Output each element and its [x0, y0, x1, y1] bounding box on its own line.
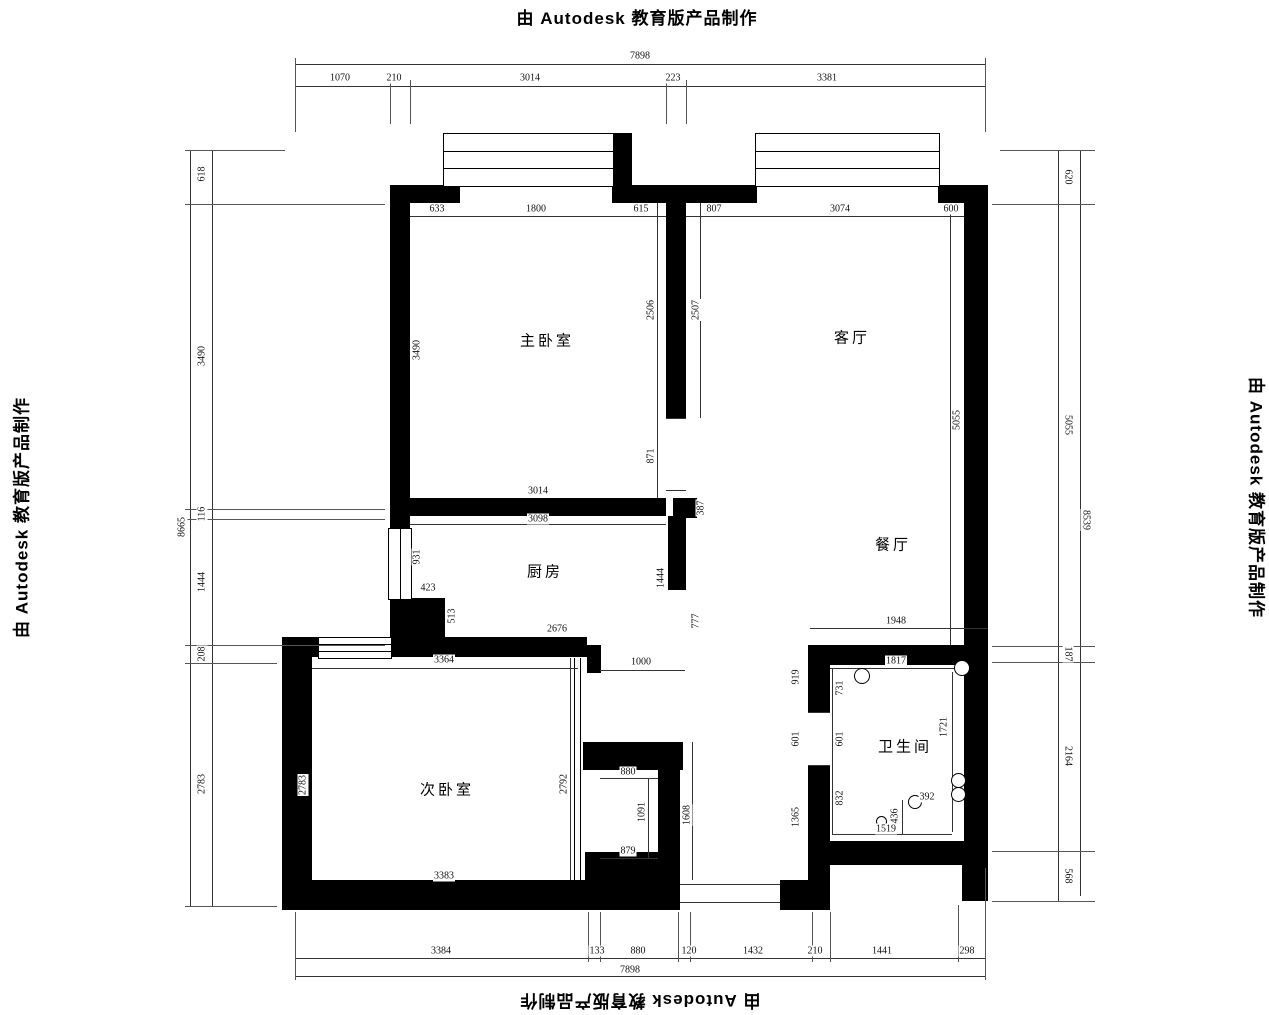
- dim-line-1091: [648, 778, 649, 858]
- wall-top-left: [390, 185, 460, 203]
- floor-plan-canvas: 由 Autodesk 教育版产品制作 由 Autodesk 教育版产品制作 由 …: [0, 0, 1269, 1015]
- dim-lr-807: 807: [706, 204, 723, 215]
- extension-line: [830, 912, 831, 962]
- extension-line: [992, 851, 1095, 852]
- dim-right-2164: 2164: [1063, 745, 1074, 767]
- wall-right-exterior: [964, 203, 988, 843]
- fixture-circle: [854, 668, 870, 684]
- room-label-master-bedroom: 主卧室: [520, 334, 574, 349]
- dim-left-2783: 2783: [197, 773, 208, 795]
- extension-line: [992, 901, 1095, 902]
- wall-mid-partition: [666, 203, 686, 418]
- extension-line: [185, 645, 385, 646]
- dim-line-bottom-total: [295, 976, 985, 977]
- dim-line-880: [600, 778, 658, 779]
- dim-1091: 1091: [637, 801, 648, 823]
- dim-line-left-segs: [212, 150, 213, 906]
- dim-line-lr-top: [686, 216, 964, 217]
- dim-line-1000: [600, 670, 685, 671]
- dim-bottom-210: 210: [807, 946, 824, 957]
- room-label-kitchen: 厨房: [527, 565, 563, 580]
- dim-931: 931: [412, 549, 423, 566]
- dim-mb-615: 615: [633, 204, 650, 215]
- dim-2507: 2507: [691, 299, 702, 321]
- extension-line: [185, 519, 385, 520]
- dim-left-116: 116: [197, 506, 208, 523]
- dim-mb-1800: 1800: [525, 204, 547, 215]
- wall-hall-stub: [587, 645, 601, 673]
- extension-line: [686, 80, 687, 124]
- dim-line-bottom-segs: [295, 958, 985, 959]
- bath-door-jamb: [808, 712, 830, 713]
- dim-right-187: 187: [1063, 646, 1074, 663]
- dim-1444: 1444: [656, 567, 667, 589]
- dim-left-208: 208: [197, 646, 208, 663]
- extension-line: [1000, 150, 1095, 151]
- dim-3098: 3098: [527, 514, 549, 525]
- dim-bottom-298: 298: [959, 946, 976, 957]
- banner-left: 由 Autodesk 教育版产品制作: [8, 348, 33, 688]
- dim-right-5055: 5055: [1063, 414, 1074, 436]
- extension-line: [992, 646, 1095, 647]
- dim-top-1070: 1070: [329, 73, 351, 84]
- dim-871: 871: [646, 448, 657, 465]
- dim-line-top-total: [295, 64, 985, 65]
- dim-line-1817: [830, 668, 958, 669]
- dim-bottom-120: 120: [681, 946, 698, 957]
- dim-line-1721: [952, 672, 953, 832]
- dim-2506: 2506: [646, 299, 657, 321]
- dim-3364: 3364: [433, 655, 455, 666]
- dim-1817: 1817: [885, 656, 907, 667]
- dim-top-210: 210: [386, 73, 403, 84]
- extension-line: [185, 509, 385, 510]
- dim-436: 436: [890, 808, 901, 825]
- dim-top-total: 7898: [629, 51, 651, 62]
- dim-bottom-1441: 1441: [871, 946, 893, 957]
- dim-601-in: 601: [835, 731, 846, 748]
- dim-lr-3074: 3074: [829, 204, 851, 215]
- wall-top-mid: [612, 185, 757, 203]
- dim-top-223: 223: [665, 73, 682, 84]
- dim-1000: 1000: [630, 657, 652, 668]
- dim-392: 392: [919, 792, 936, 803]
- extension-line: [295, 58, 296, 132]
- dim-line-1948: [810, 628, 988, 629]
- dim-1608: 1608: [682, 804, 693, 826]
- dim-777: 777: [691, 613, 702, 630]
- dim-right-568: 568: [1063, 868, 1074, 885]
- banner-top: 由 Autodesk 教育版产品制作: [467, 4, 807, 29]
- fixture-circle: [951, 773, 966, 788]
- dim-879: 879: [620, 846, 637, 857]
- dim-832: 832: [835, 790, 846, 807]
- dim-left-618: 618: [197, 166, 208, 183]
- dim-lr-600: 600: [943, 204, 960, 215]
- dim-line-left-total: [190, 150, 191, 906]
- wall-sb-top-b: [390, 637, 587, 657]
- window-living-room: [755, 133, 940, 187]
- wall-sb-bottom: [282, 880, 680, 910]
- dim-2676: 2676: [546, 624, 568, 635]
- extension-line: [185, 906, 277, 907]
- fixture-circle: [954, 660, 970, 676]
- dim-3014: 3014: [527, 486, 549, 497]
- extension-line: [992, 204, 1095, 205]
- dim-1948: 1948: [885, 616, 907, 627]
- dim-line-3364: [312, 668, 578, 669]
- dim-mb-3490: 3490: [412, 339, 423, 361]
- extension-line: [985, 868, 986, 980]
- dim-2792: 2792: [559, 773, 570, 795]
- partition-sb-right: [574, 658, 581, 880]
- dim-top-3381: 3381: [816, 73, 838, 84]
- dim-513: 513: [447, 608, 458, 625]
- entry-threshold-line: [680, 884, 780, 885]
- wall-left-upper: [390, 203, 410, 528]
- dim-line-bath-inner: [832, 668, 833, 834]
- wall-kitchen-dining: [668, 516, 686, 590]
- dim-387: 387: [696, 500, 707, 517]
- dim-bottom-3384: 3384: [430, 946, 452, 957]
- dim-1721: 1721: [939, 716, 950, 738]
- extension-line: [666, 80, 667, 124]
- room-label-second-bedroom: 次卧室: [420, 783, 474, 798]
- extension-line: [185, 663, 277, 664]
- dim-423: 423: [420, 583, 437, 594]
- dim-left-1444: 1444: [197, 571, 208, 593]
- extension-line: [295, 912, 296, 980]
- dim-line-436: [902, 800, 903, 834]
- dim-5055-interior: 5055: [952, 409, 963, 431]
- banner-bottom: 由 Autodesk 教育版产品制作: [470, 990, 810, 1015]
- dim-3383: 3383: [433, 871, 455, 882]
- dim-line-879: [600, 858, 658, 859]
- dim-880-closet: 880: [620, 767, 637, 778]
- dim-line-mb-top: [410, 216, 666, 217]
- extension-line: [985, 58, 986, 132]
- dim-mb-633: 633: [429, 204, 446, 215]
- dim-right-620: 620: [1063, 169, 1074, 186]
- extension-line: [678, 912, 679, 962]
- room-label-dining-room: 餐厅: [875, 538, 911, 553]
- dim-bottom-880: 880: [630, 946, 647, 957]
- wall-top-right: [938, 185, 988, 203]
- dim-left-total: 8665: [177, 516, 188, 538]
- extension-line: [992, 662, 1095, 663]
- wall-bath-left-bottom: [808, 765, 830, 910]
- extension-line: [410, 80, 411, 124]
- dim-line-871: [657, 418, 658, 498]
- dim-bottom-1432: 1432: [742, 946, 764, 957]
- window-second-bedroom: [318, 637, 392, 659]
- dim-line-2792: [570, 658, 571, 880]
- dim-line-right-segs: [1058, 150, 1059, 901]
- dim-bottom-total: 7898: [619, 965, 641, 976]
- dim-left-3490: 3490: [197, 345, 208, 367]
- dim-1365: 1365: [791, 806, 802, 828]
- dim-top-3014: 3014: [519, 73, 541, 84]
- entry-threshold-line: [680, 902, 780, 903]
- bath-door-jamb: [808, 765, 830, 766]
- window-kitchen: [388, 528, 412, 600]
- banner-right: 由 Autodesk 教育版产品制作: [1246, 328, 1269, 668]
- dim-line-2506: [657, 203, 658, 418]
- mb-door-jamb: [666, 418, 686, 419]
- dim-bottom-133: 133: [589, 946, 606, 957]
- window-master-bedroom: [443, 133, 614, 187]
- dim-919: 919: [791, 669, 802, 686]
- wall-stub-387: [673, 498, 697, 518]
- extension-line: [390, 80, 391, 124]
- dim-2783-interior: 2783: [298, 774, 309, 796]
- mb-door-jamb: [666, 490, 686, 491]
- extension-line: [185, 204, 385, 205]
- dim-601-out: 601: [791, 731, 802, 748]
- dim-1519: 1519: [875, 824, 897, 835]
- room-label-living-room: 客厅: [834, 331, 870, 346]
- dim-right-total: 8539: [1081, 509, 1092, 531]
- dim-line-top-segs: [295, 86, 985, 87]
- extension-line: [185, 150, 285, 151]
- fixture-circle: [951, 787, 966, 802]
- room-label-bathroom: 卫生间: [878, 740, 932, 755]
- dim-731: 731: [835, 680, 846, 697]
